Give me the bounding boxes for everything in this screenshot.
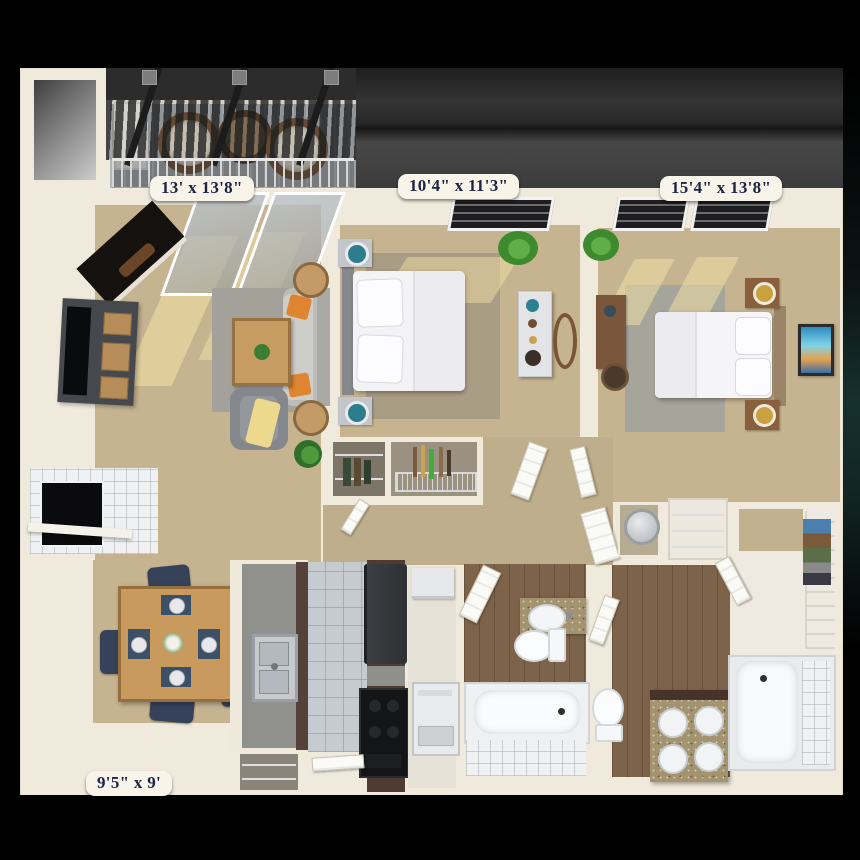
washer-controls [418,690,452,696]
walk-in-closet [735,505,837,657]
bathtub-basin [736,661,798,763]
dresser [518,291,552,377]
pantry-interior [240,754,298,790]
label-bedroom-small: 10'4" x 11'3" [398,174,519,199]
pergola-post [232,70,247,85]
toilet-tank [595,724,623,742]
pass-through-nook [28,466,162,556]
side-table [293,262,329,298]
faucet [271,663,278,670]
master-bathtub [728,655,836,771]
placemat [198,629,220,659]
placemat [128,629,150,659]
double-vanity [650,690,728,782]
side-table [293,400,329,436]
duvet [655,312,697,398]
folded-clothes [803,519,831,585]
console-drawer [101,342,130,371]
dining-area [93,558,233,724]
pergola-post [324,70,339,85]
vanity-backsplash [650,690,728,700]
bath-tile-floor [466,740,586,776]
plate [131,637,147,653]
plate [201,637,217,653]
sofa-back [317,288,330,406]
kitchen-counter-left [230,560,308,752]
pillow [735,317,771,355]
balcony [106,68,358,190]
wall-art [798,324,834,376]
linen-shelf [672,514,724,516]
pillow [356,334,404,384]
placemat [161,667,191,687]
sink [694,742,724,772]
label-bedroom-large-text: 15'4" x 13'8" [671,178,771,197]
linen-shelf [672,546,724,548]
roof-shadow-band [356,68,843,188]
duvet [413,271,465,391]
burner [369,700,381,712]
lamp-teal [345,242,369,266]
bathtub-drain [760,675,767,682]
laundry-closet [404,560,460,792]
toilet-bowl [592,688,624,728]
washer [412,682,460,756]
burner [369,726,381,738]
background-left [0,68,20,795]
stove [359,688,409,778]
console-drawer [100,376,129,399]
desk [596,295,626,369]
potted-plant [591,237,611,255]
washer-door [418,726,454,746]
tv-console [57,298,138,406]
linen-shelf [672,530,724,532]
bed-small [353,271,463,391]
tub-tile-surround [802,661,830,765]
fireplace-logs [117,242,156,279]
bed-headboard [774,306,786,406]
table-plant [254,344,270,360]
teal-vase [526,299,539,312]
plate [169,598,185,614]
laundry-shelf [412,568,454,599]
water-heater [624,509,660,545]
oven-handle [365,754,401,768]
burner [387,726,399,738]
plate [169,670,185,686]
lamp-teal [345,401,369,425]
closet-back-wall [739,509,803,551]
toilet-tank [548,628,566,662]
wire-shelf [242,778,296,780]
desk-item [604,305,616,317]
refrigerator [364,564,407,664]
linen-closet [668,498,728,560]
background-bottom [0,795,860,860]
potted-plant [508,239,530,259]
water-heater-closet [618,503,660,557]
console-drawer [103,312,132,335]
nook-dark-panel [40,481,104,547]
sink [658,708,688,738]
background-right [843,68,860,795]
floorplan-render: 13' x 13'8" 10'4" x 11'3" 15'4" x 13'8" … [0,0,860,860]
wall-mirror [553,313,577,369]
flower-centerpiece [163,633,183,653]
placemat [161,595,191,615]
desk-chair [601,363,629,391]
bedroom-large-window [690,197,774,231]
label-dining-area-text: 9'5" x 9' [97,773,161,792]
coffee-table [232,318,291,386]
kitchen-sink [252,634,298,702]
lamp-gold [753,282,776,305]
pergola-post [142,70,157,85]
armchair [230,388,288,450]
wire-shelf [242,764,296,766]
lamp-gold [753,404,776,427]
decor-item [528,319,537,328]
bathtub-drain [558,708,565,715]
label-living-room-text: 13' x 13'8" [161,178,243,197]
pillow [356,278,404,328]
label-dining-area: 9'5" x 9' [86,771,172,796]
storage-closet-interior [32,78,98,182]
bathroom-hall [460,560,588,795]
bed-large [655,312,772,398]
bathtub [464,682,590,744]
tv-screen [63,306,92,395]
label-living-room: 13' x 13'8" [150,176,254,201]
label-bedroom-small-text: 10'4" x 11'3" [409,176,508,195]
faucet [566,612,573,619]
decor-item [525,350,541,366]
decor-item [529,336,537,344]
hallway-floor [323,505,613,565]
sink [694,706,724,736]
sink-basin [259,670,289,694]
bedroom-small-window [447,197,555,231]
burner [387,700,399,712]
pillow [735,358,771,396]
dining-table [118,586,236,702]
floor-plant [301,446,319,464]
bedroom-large-window [612,197,690,231]
sink [658,744,688,774]
label-bedroom-large: 15'4" x 13'8" [660,176,782,201]
background-top [0,0,860,68]
counter-segment [367,666,405,686]
